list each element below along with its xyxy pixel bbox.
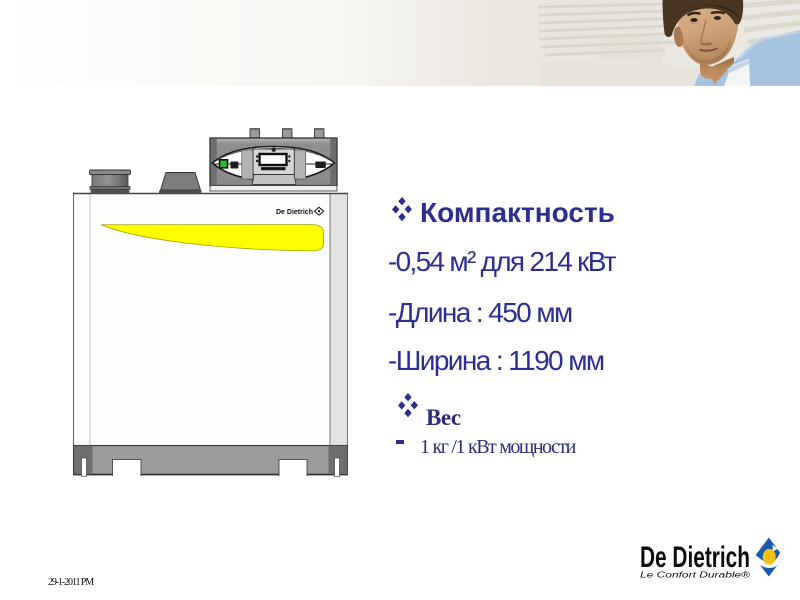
svg-text:De Dietrich: De Dietrich bbox=[640, 541, 750, 574]
svg-text:Le Confort Durable®: Le Confort Durable® bbox=[640, 571, 751, 580]
svg-text:De Dietrich: De Dietrich bbox=[276, 209, 313, 216]
